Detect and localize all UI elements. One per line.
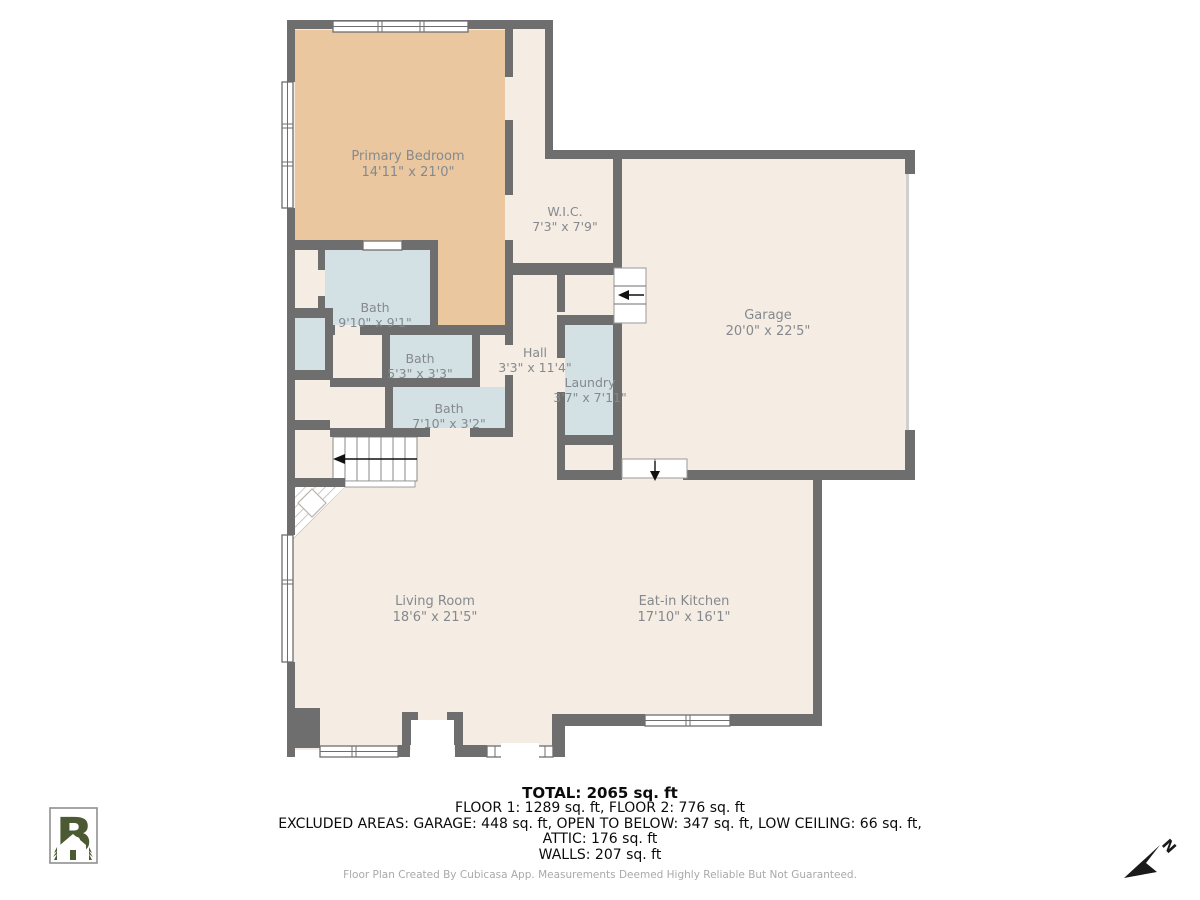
window-bedroom-top [333, 21, 468, 32]
summary-floors: FLOOR 1: 1289 sq. ft, FLOOR 2: 776 sq. f… [0, 801, 1200, 817]
room-shower-floor [295, 318, 325, 370]
room-primary-bedroom-floor [295, 30, 505, 242]
room-dims-living-room: 18'6" x 21'5" [393, 610, 478, 625]
area-summary: TOTAL: 2065 sq. ft FLOOR 1: 1289 sq. ft,… [0, 785, 1200, 863]
north-arrow-pointer [1124, 845, 1160, 878]
summary-walls: WALLS: 207 sq. ft [0, 848, 1200, 864]
floor-plan-svg: Primary Bedroom 14'11" x 21'0" W.I.C. 7'… [0, 0, 1200, 780]
brand-logo: B [49, 807, 99, 865]
room-label-garage: Garage [744, 308, 792, 323]
window-kitchen-bottom [645, 715, 730, 726]
room-dims-bath-third: 7'10" x 3'2" [412, 416, 485, 431]
room-label-living-room: Living Room [395, 594, 475, 609]
room-label-bath-small: Bath [405, 351, 434, 366]
room-dims-laundry: 3'7" x 7'11" [553, 390, 626, 405]
room-label-hall: Hall [523, 345, 547, 360]
floor-plan-page: Primary Bedroom 14'11" x 21'0" W.I.C. 7'… [0, 0, 1200, 900]
room-label-wic: W.I.C. [547, 204, 582, 219]
window-bath-interior [363, 241, 402, 250]
logo-house-door [70, 850, 76, 860]
summary-attic: ATTIC: 176 sq. ft [0, 832, 1200, 848]
door-garage-to-hall [614, 268, 646, 323]
room-label-eat-in-kitchen: Eat-in Kitchen [639, 594, 730, 609]
room-label-primary-bedroom: Primary Bedroom [351, 149, 464, 164]
room-dims-hall: 3'3" x 11'4" [498, 360, 571, 375]
room-primary-bedroom-floor-ext [438, 242, 505, 327]
room-label-bath-third: Bath [434, 401, 463, 416]
window-bedroom-left [282, 82, 293, 208]
room-dims-garage: 20'0" x 22'5" [726, 324, 811, 339]
door-entry-opening [501, 743, 539, 759]
staircase-main [333, 437, 417, 487]
north-arrow-label: N [1158, 835, 1180, 856]
window-living-left [282, 535, 293, 662]
summary-excluded: EXCLUDED AREAS: GARAGE: 448 sq. ft, OPEN… [0, 817, 1200, 833]
room-dims-primary-bedroom: 14'11" x 21'0" [362, 165, 455, 180]
room-dims-bath-small: 5'3" x 3'3" [387, 366, 453, 381]
room-label-laundry: Laundry [565, 375, 617, 390]
room-dims-eat-in-kitchen: 17'10" x 16'1" [638, 610, 731, 625]
room-label-bath-large: Bath [360, 300, 389, 315]
north-arrow: N [1108, 830, 1188, 890]
window-living-bottom [320, 746, 398, 757]
disclaimer-text: Floor Plan Created By Cubicasa App. Meas… [0, 869, 1200, 881]
window-small-2 [537, 746, 553, 757]
room-dims-wic: 7'3" x 7'9" [532, 219, 598, 234]
door-garage-exterior [622, 459, 687, 481]
summary-total: TOTAL: 2065 sq. ft [0, 785, 1200, 801]
window-small-1 [487, 746, 503, 757]
room-dims-bath-large: 9'10" x 9'1" [338, 315, 411, 330]
